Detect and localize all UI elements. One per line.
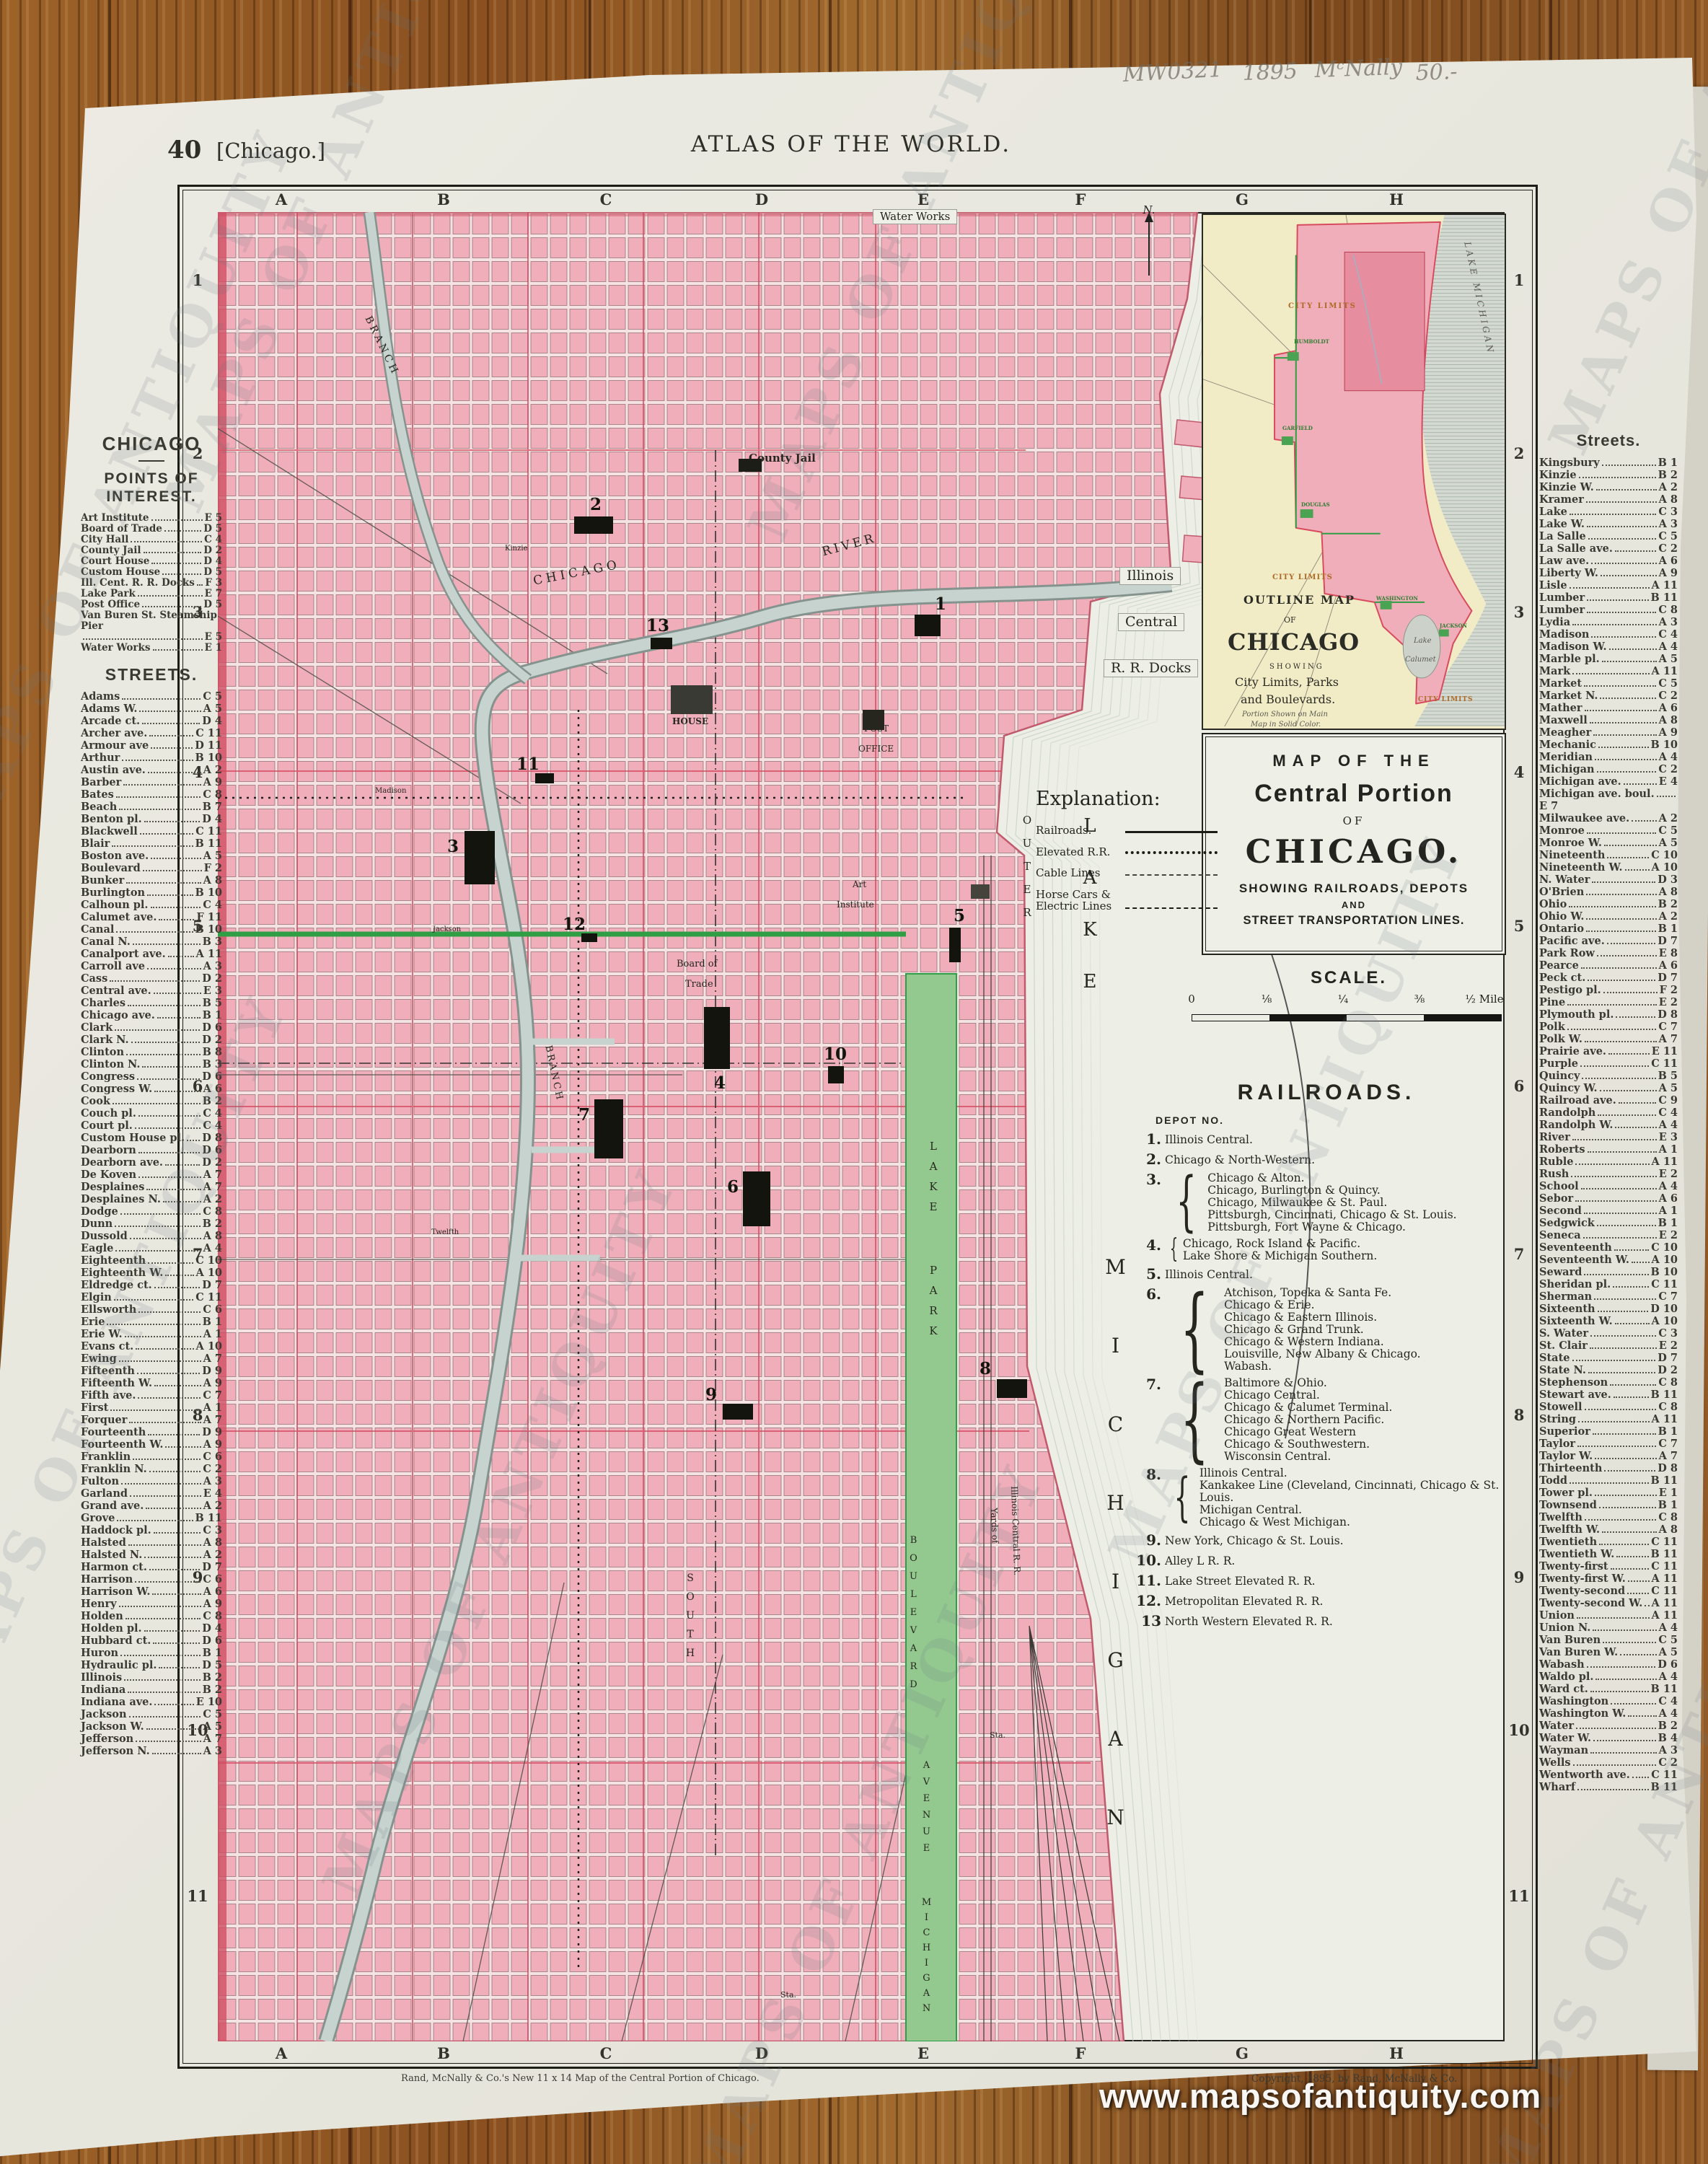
streets-heading: STREETS. (81, 665, 222, 685)
legend-title: Explanation: (1036, 788, 1218, 810)
depot-number-label: 6. (1122, 1285, 1165, 1303)
street-name: Sherman (1539, 1290, 1592, 1303)
inset-label: Lake (1414, 638, 1432, 645)
dotted-leader (1586, 501, 1657, 503)
street-name: Halsted N. (81, 1549, 142, 1561)
street-grid-ref: A 2 (1659, 812, 1678, 824)
index-row: Meridian A 4 (1539, 751, 1678, 763)
index-row: Washington W. A 4 (1539, 1707, 1678, 1720)
index-row: Jefferson A 7 (81, 1733, 222, 1745)
city-street-grid (218, 212, 1197, 2041)
index-row: Canal B 10 (81, 923, 222, 936)
street-grid-ref: B 1 (203, 1316, 222, 1328)
index-row: City Hall C 4 (81, 535, 222, 545)
dotted-leader (154, 1385, 201, 1386)
street-grid-ref: B 1 (203, 1009, 222, 1021)
index-row: Cook B 2 (81, 1095, 222, 1107)
street-name: Washington (1539, 1695, 1608, 1707)
index-row: Mark A 11 (1539, 665, 1678, 677)
street-name: Park Row (1539, 947, 1595, 959)
index-row: Van Buren C 5 (1539, 1634, 1678, 1646)
street-grid-ref: A 4 (1659, 751, 1678, 763)
street-name: Taylor (1539, 1438, 1575, 1450)
index-row: Holden C 8 (81, 1610, 222, 1622)
street-name: Nineteenth (1539, 849, 1605, 861)
street-name: Jackson (81, 1708, 127, 1720)
dotted-leader (1588, 538, 1657, 540)
street-name: Lydia (1539, 616, 1570, 628)
index-row: Michigan ave. E 4 (1539, 775, 1678, 788)
points-of-interest-list: Art Institute E 5 Board of Trade D 5 Cit… (81, 513, 222, 654)
legend: Explanation: Railroads. Elevated R.R. Ca… (1036, 788, 1218, 922)
street-name: Court pl. (81, 1120, 133, 1132)
street-grid-ref: B 1 (1658, 1217, 1678, 1229)
street-grid-ref: A 4 (1659, 641, 1678, 653)
street-grid-ref: A 3 (203, 1475, 222, 1487)
dotted-leader (163, 1201, 201, 1202)
dotted-leader (1598, 1114, 1656, 1116)
dotted-leader (119, 1606, 201, 1607)
legend-row: Cable Lines (1036, 867, 1218, 879)
street-grid-ref: C 2 (1658, 690, 1678, 702)
inset-label: Portion Shown on Main (1242, 711, 1328, 718)
street-grid-ref: D 8 (202, 1132, 222, 1144)
street-name: Henry (81, 1598, 117, 1610)
street-name: Pestigo pl. (1539, 984, 1601, 996)
index-row: Todd B 11 (1539, 1474, 1678, 1487)
street-name: Maxwell (1539, 714, 1588, 726)
street-grid-ref: A 11 (1652, 579, 1678, 591)
dotted-leader (151, 747, 193, 749)
dotted-leader (1570, 1482, 1648, 1484)
street-name: Evans ct. (81, 1340, 133, 1352)
dotted-leader (1603, 992, 1658, 993)
street-grid-ref: C 4 (1658, 1695, 1678, 1707)
street-grid-ref: E 7 (1539, 800, 1558, 812)
street-name: Townsend (1539, 1499, 1597, 1511)
street-grid-ref: C 5 (1658, 1634, 1678, 1646)
dotted-leader (1616, 1556, 1648, 1557)
atlas-page-photo: 40 [Chicago.] ATLAS OF THE WORLD. MW0321… (0, 0, 1708, 2164)
index-row: Harrison C 6 (81, 1573, 222, 1585)
street-grid-ref: C 10 (1651, 849, 1678, 861)
dotted-leader (136, 1348, 193, 1350)
street-name: Thirteenth (1539, 1462, 1602, 1474)
street-grid-ref: B 11 (195, 1512, 222, 1524)
street-name: Marble pl. (1539, 653, 1600, 665)
railroad-entry: 9.New York, Chicago & St. Louis. (1122, 1531, 1531, 1549)
index-row: Meagher A 9 (1539, 726, 1678, 739)
dotted-leader (1580, 1065, 1649, 1067)
street-name: Pacific ave. (1539, 935, 1605, 947)
dotted-leader (151, 563, 201, 564)
dotted-leader (1586, 918, 1656, 920)
street-grid-ref: D 9 (202, 1426, 222, 1438)
right-index-column: Streets. Kingsbury B 1 Kinzie B 2 Kinzie… (1539, 431, 1678, 1793)
street-name: Mechanic (1539, 739, 1596, 751)
street-name: Bunker (81, 874, 124, 887)
page-subject: [Chicago.] (216, 138, 325, 163)
street-grid-ref: B 10 (195, 752, 222, 764)
index-row: Seventeenth W. A 10 (1539, 1254, 1678, 1266)
street-name: Ewing (81, 1352, 117, 1365)
index-row: Carroll ave A 3 (81, 960, 222, 972)
dotted-leader (121, 1483, 201, 1485)
index-row: Holden pl. D 4 (81, 1622, 222, 1635)
street-name: Ward ct. (1539, 1683, 1588, 1695)
dotted-leader (1607, 943, 1656, 944)
index-row: Quincy B 5 (1539, 1070, 1678, 1082)
railroad-entry: 1.Illinois Central. (1122, 1130, 1531, 1148)
dotted-leader (1645, 1605, 1649, 1606)
dotted-leader (1598, 747, 1649, 748)
street-name: Fifteenth W. (81, 1377, 152, 1389)
depot-number-label: 7. (1122, 1376, 1165, 1393)
street-name: La Salle ave. (1539, 542, 1613, 555)
index-row: Clinton N. B 3 (81, 1058, 222, 1070)
street-grid-ref: A 4 (1659, 1622, 1678, 1634)
street-name: Twelfth (1539, 1511, 1582, 1523)
poi-name: Van Buren St. Steamship Pier (81, 610, 222, 632)
street-grid-ref: A 8 (1659, 1523, 1678, 1536)
street-name: Clinton N. (81, 1058, 140, 1070)
street-grid-ref: B 1 (1658, 1499, 1678, 1511)
dotted-leader (164, 530, 201, 532)
street-name: Austin ave. (81, 764, 146, 776)
dotted-leader (1595, 1495, 1657, 1496)
street-name: Holden (81, 1610, 123, 1622)
street-name: Purple (1539, 1057, 1578, 1070)
street-grid-ref: C 2 (1658, 763, 1678, 775)
street-grid-ref: B 1 (1658, 1425, 1678, 1438)
street-grid-ref: C 6 (203, 1451, 222, 1463)
index-row: Fulton A 3 (81, 1475, 222, 1487)
street-name: Cass (81, 972, 107, 985)
index-row: Pestigo pl. F 2 (1539, 984, 1678, 996)
dotted-leader (147, 968, 201, 969)
dotted-leader (130, 1495, 201, 1497)
index-row: Madison C 4 (1539, 628, 1678, 641)
index-row: Adams C 5 (81, 690, 222, 703)
index-row: Erie W. A 1 (81, 1328, 222, 1340)
index-row: Liberty W. A 9 (1539, 567, 1678, 579)
street-grid-ref: C 8 (1658, 1511, 1678, 1523)
street-name: Liberty W. (1539, 567, 1598, 579)
street-grid-ref: C 5 (1658, 530, 1678, 542)
dotted-leader (1604, 845, 1657, 846)
street-grid-ref: C 3 (203, 1524, 222, 1536)
railroad-entry: 4.{Chicago, Rock Island & Pacific.Lake S… (1122, 1236, 1531, 1262)
index-row: Thirteenth D 8 (1539, 1462, 1678, 1474)
street-name: Congress W. (81, 1083, 152, 1095)
dotted-leader (1577, 1617, 1650, 1619)
street-grid-ref: B 1 (203, 1647, 222, 1659)
dotted-leader (1597, 955, 1657, 956)
index-row: Franklin N. C 2 (81, 1463, 222, 1475)
index-row: Garland E 4 (81, 1487, 222, 1500)
seller-website-watermark: www.mapsofantiquity.com (1099, 2076, 1541, 2116)
dotted-leader (1616, 1016, 1655, 1018)
street-name: Nineteenth W. (1539, 861, 1623, 874)
railroad-names: Baltimore & Ohio.Chicago Central.Chicago… (1224, 1376, 1392, 1463)
dotted-leader (1585, 1041, 1657, 1042)
street-grid-ref: B 2 (203, 1671, 222, 1684)
index-row: Ruble A 11 (1539, 1156, 1678, 1168)
dotted-leader (119, 1360, 201, 1362)
street-name: Prairie ave. (1539, 1045, 1606, 1057)
dotted-leader (1577, 1446, 1656, 1447)
index-row: Dodge C 8 (81, 1205, 222, 1218)
dotted-leader (139, 711, 201, 712)
index-row: Archer ave. C 11 (81, 727, 222, 739)
street-grid-ref: B 1 (1658, 457, 1678, 469)
index-row: Kramer A 8 (1539, 493, 1678, 506)
street-grid-ref: A 4 (1659, 1671, 1678, 1683)
street-name: Carroll ave (81, 960, 145, 972)
street-grid-ref: E 10 (196, 1696, 222, 1708)
street-grid-ref: A 6 (1659, 555, 1678, 567)
street-name: Harrison W. (81, 1585, 150, 1598)
index-row: Michigan C 2 (1539, 763, 1678, 775)
index-row: Twelfth C 8 (1539, 1511, 1678, 1523)
street-name: Monroe W. (1539, 837, 1602, 849)
street-grid-ref: D 6 (1658, 1658, 1678, 1671)
street-grid-ref: B 4 (1658, 1732, 1678, 1744)
index-row: Seneca E 2 (1539, 1229, 1678, 1241)
street-grid-ref: B 11 (195, 837, 222, 850)
street-grid-ref: D 7 (1658, 935, 1678, 947)
railroad-entry: 7.{Baltimore & Ohio.Chicago Central.Chic… (1122, 1376, 1531, 1463)
inset-label: OF (1284, 616, 1296, 624)
index-row: Fifteenth D 9 (81, 1365, 222, 1377)
index-row: Boston ave. A 5 (81, 850, 222, 862)
street-name: La Salle (1539, 530, 1586, 542)
street-name: State N. (1539, 1364, 1586, 1376)
inset-label: JACKSON (1440, 623, 1467, 628)
street-name: Erie (81, 1316, 105, 1328)
street-name: Randolph W. (1539, 1119, 1613, 1131)
brace-glyph: { (1180, 1290, 1209, 1368)
index-row: Beach B 7 (81, 801, 222, 813)
dotted-leader (129, 1422, 201, 1423)
dotted-leader (1614, 1397, 1649, 1398)
dotted-leader (1597, 771, 1657, 773)
railroads-block: RAILROADS. DEPOT NO. 1.Illinois Central.… (1122, 1081, 1531, 1632)
index-row: Polk W. A 7 (1539, 1033, 1678, 1045)
street-grid-ref: B 3 (203, 1058, 222, 1070)
streets-heading-right: Streets. (1539, 431, 1678, 450)
scale-segment (1192, 1015, 1269, 1021)
dotted-leader (131, 541, 202, 542)
index-row: Second A 1 (1539, 1205, 1678, 1217)
street-grid-ref: A 3 (203, 1745, 222, 1757)
street-grid-ref: C 4 (1658, 1107, 1678, 1119)
poi-grid-ref: D 5 (203, 524, 222, 535)
street-name: De Koven (81, 1169, 136, 1181)
street-name: Garland (81, 1487, 128, 1500)
street-name: Ohio W. (1539, 910, 1584, 923)
dotted-leader (144, 1630, 201, 1632)
street-name: Canalport ave. (81, 948, 166, 960)
index-row: Eighteenth W. A 10 (81, 1267, 222, 1279)
dotted-leader (113, 1103, 201, 1104)
street-name: Polk W. (1539, 1033, 1582, 1045)
street-name: School (1539, 1180, 1579, 1192)
street-grid-ref: B 10 (195, 887, 222, 899)
dotted-leader (1567, 1029, 1657, 1030)
street-grid-ref: B 10 (195, 923, 222, 936)
index-row: Canal N. B 3 (81, 936, 222, 948)
dotted-leader (1607, 857, 1649, 858)
index-row: Superior B 1 (1539, 1425, 1678, 1438)
street-grid-ref: A 2 (203, 1193, 222, 1205)
index-row: Ohio B 2 (1539, 898, 1678, 910)
dotted-leader (1590, 1691, 1649, 1692)
index-row: Calhoun pl. C 4 (81, 899, 222, 911)
street-grid-ref: A 9 (203, 776, 222, 788)
index-row: O'Brien A 8 (1539, 886, 1678, 898)
dotted-leader (140, 833, 193, 835)
index-row: Ontario B 1 (1539, 923, 1678, 935)
street-name: Fourteenth (81, 1426, 146, 1438)
dotted-leader (144, 1557, 201, 1558)
street-name: Water W. (1539, 1732, 1591, 1744)
depot-number-label: 2. (1122, 1151, 1165, 1168)
railroad-names: New York, Chicago & St. Louis. (1165, 1534, 1344, 1547)
index-row: Stowell C 8 (1539, 1401, 1678, 1413)
index-row: Taylor C 7 (1539, 1438, 1678, 1450)
street-name: N. Water (1539, 874, 1590, 886)
index-row: Grand ave. A 2 (81, 1500, 222, 1512)
street-grid-ref: F 11 (196, 911, 222, 923)
street-name: Jefferson N. (81, 1745, 150, 1757)
poi-name: County Jail (81, 545, 141, 556)
inset-label: OUTLINE MAP (1243, 594, 1355, 606)
street-name: Dodge (81, 1205, 118, 1218)
dotted-leader (146, 1508, 201, 1509)
street-name: Rush (1539, 1168, 1569, 1180)
index-row: String A 11 (1539, 1413, 1678, 1425)
street-name: Pearce (1539, 959, 1579, 972)
index-row: Court pl. C 4 (81, 1120, 222, 1132)
street-name: Grove (81, 1512, 115, 1524)
inset-label: GARFIELD (1282, 426, 1313, 431)
dotted-leader (1627, 1593, 1649, 1594)
index-row: Desplaines A 7 (81, 1181, 222, 1193)
street-grid-ref: D 4 (202, 1622, 222, 1635)
dotted-leader (148, 772, 201, 773)
dotted-leader (1614, 1249, 1649, 1251)
street-name: River (1539, 1131, 1570, 1143)
dotted-leader (125, 1336, 201, 1337)
street-name: Fifth ave. (81, 1389, 136, 1402)
dotted-leader (116, 931, 193, 933)
street-name: Indiana ave. (81, 1696, 152, 1708)
street-grid-ref: D 4 (202, 715, 222, 727)
street-name: Lisle (1539, 579, 1567, 591)
index-row: Evans ct. A 10 (81, 1340, 222, 1352)
street-grid-ref: A 1 (203, 1402, 222, 1414)
street-grid-ref: A 2 (1659, 481, 1678, 493)
street-grid-ref: B 7 (203, 801, 222, 813)
index-row: Ward ct. B 11 (1539, 1683, 1678, 1695)
street-name: Kramer (1539, 493, 1584, 506)
street-name: Roberts (1539, 1143, 1585, 1156)
index-row: Wentworth ave. C 11 (1539, 1769, 1678, 1781)
street-grid-ref: A 11 (196, 948, 222, 960)
title-line-6: AND (1203, 900, 1505, 910)
title-line-4: CHICAGO. (1203, 832, 1505, 871)
legend-label: Railroads. (1036, 824, 1122, 837)
street-grid-ref: C 10 (195, 1254, 222, 1267)
railroads-heading: RAILROADS. (1122, 1081, 1531, 1105)
index-row: Haddock pl. C 3 (81, 1524, 222, 1536)
dotted-leader (142, 606, 201, 607)
street-grid-ref: A 9 (203, 1377, 222, 1389)
index-row: Kinzie W. A 2 (1539, 481, 1678, 493)
street-name: Desplaines N. (81, 1193, 161, 1205)
compass: N. (1138, 203, 1160, 276)
dotted-leader (144, 821, 201, 822)
index-row: Sixteenth D 10 (1539, 1303, 1678, 1315)
street-grid-ref: C 7 (1658, 1438, 1678, 1450)
index-row: Fifth ave. C 7 (81, 1389, 222, 1402)
street-grid-ref: A 5 (203, 1720, 222, 1733)
dotted-leader (165, 1275, 193, 1276)
street-grid-ref: E 4 (203, 1487, 222, 1500)
street-name: Clark (81, 1021, 113, 1034)
dotted-leader (135, 1581, 201, 1583)
index-row: Railroad ave. C 9 (1539, 1094, 1678, 1107)
street-grid-ref: C 4 (203, 1107, 222, 1120)
street-name: Ontario (1539, 923, 1584, 935)
dotted-leader (159, 1667, 200, 1668)
index-row: Union A 11 (1539, 1609, 1678, 1622)
dotted-leader (1588, 1151, 1657, 1153)
dotted-leader (138, 1397, 201, 1399)
street-name: Stephenson (1539, 1376, 1608, 1389)
depot-number-label: 10. (1122, 1552, 1165, 1569)
depot-number-label: 3. (1122, 1171, 1165, 1188)
dotted-leader (154, 1704, 193, 1705)
railroad-names: Alley L R. R. (1165, 1554, 1235, 1567)
brace-glyph: { (1176, 1174, 1197, 1230)
street-grid-ref: A 4 (1659, 1707, 1678, 1720)
index-row: Blackwell C 11 (81, 825, 222, 837)
dotted-leader (1657, 796, 1676, 797)
index-row: Elgin C 11 (81, 1291, 222, 1303)
street-name: Taylor W. (1539, 1450, 1593, 1462)
street-grid-ref: A 5 (203, 703, 222, 715)
railroad-entry: 11.Lake Street Elevated R. R. (1122, 1572, 1531, 1589)
street-grid-ref: E 1 (1659, 1487, 1678, 1499)
street-name: Quincy W. (1539, 1082, 1598, 1094)
index-row: Fifteenth W. A 9 (81, 1377, 222, 1389)
street-grid-ref: D 7 (202, 1279, 222, 1291)
street-name: Indiana (81, 1684, 126, 1696)
street-name: Stewart ave. (1539, 1389, 1611, 1401)
street-name: Monroe (1539, 824, 1585, 837)
index-row: Madison W. A 4 (1539, 641, 1678, 653)
street-grid-ref: C 3 (1658, 506, 1678, 518)
index-row: Fourteenth W. A 9 (81, 1438, 222, 1451)
street-grid-ref: A 8 (1659, 714, 1678, 726)
inset-label: Calumet (1405, 656, 1436, 664)
dotted-leader (151, 907, 201, 908)
index-row: Adams W. A 5 (81, 703, 222, 715)
street-name: Holden pl. (81, 1622, 142, 1635)
index-row: Twentieth W. B 11 (1539, 1548, 1678, 1560)
